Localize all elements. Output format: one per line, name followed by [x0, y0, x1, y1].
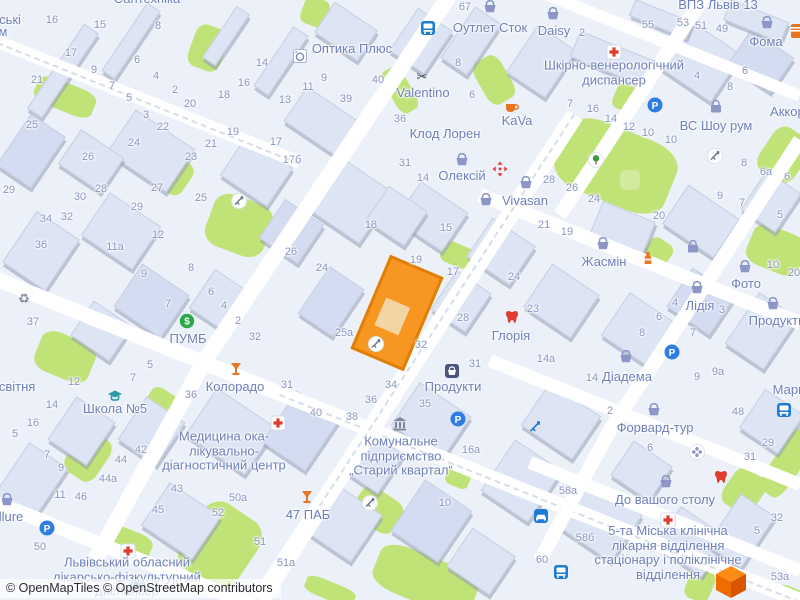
house-number: 2: [172, 84, 178, 96]
house-number: 11: [302, 81, 313, 93]
basket-icon[interactable]: [595, 236, 611, 252]
poi-label: Олексій: [438, 169, 485, 184]
house-number: 18: [218, 89, 230, 101]
house-number: 8: [741, 157, 747, 169]
house-number: 22: [157, 121, 169, 133]
house-number: 26: [566, 182, 578, 194]
house-number: 34: [385, 379, 397, 391]
poi-label: Глорія: [492, 329, 530, 344]
house-number: 6: [742, 65, 748, 77]
house-number: 5: [126, 92, 132, 104]
house-number: 60: [536, 554, 548, 566]
poi-label-line: діагностичний центр: [162, 458, 286, 473]
house-number: 2: [579, 27, 585, 39]
basket-icon[interactable]: [618, 349, 634, 365]
house-number: 31: [281, 379, 293, 391]
house-number: 24: [588, 193, 600, 205]
house-number: 18: [365, 219, 377, 231]
glass-icon[interactable]: [228, 361, 244, 377]
house-number: 9: [694, 371, 700, 383]
playground-icon[interactable]: [368, 336, 384, 352]
house-number: 36: [35, 239, 47, 251]
house-number: 16: [46, 14, 58, 26]
poi-label-line: Медицина ока-: [162, 429, 286, 444]
house-number: 3: [143, 109, 149, 121]
poi-label-line: Фото: [731, 277, 761, 292]
house-number: 34: [40, 213, 52, 225]
poi-label: Daisy: [538, 24, 571, 39]
poi-label-line: Комунальне: [349, 434, 453, 449]
parking-icon[interactable]: P: [664, 344, 680, 360]
house-number: 25a: [335, 327, 353, 339]
poi-label-line: Продукти: [425, 380, 482, 395]
house-number: 24: [128, 137, 140, 149]
house-number: 49: [716, 23, 728, 35]
house-number: 9: [91, 64, 97, 76]
house-number: 44a: [99, 473, 117, 485]
house-number: 28: [543, 174, 555, 186]
svg-text:P: P: [44, 524, 51, 535]
house-number: 29: [762, 437, 774, 449]
bus-icon[interactable]: [420, 20, 436, 36]
house-number: 8: [155, 20, 161, 32]
poi-label-line: Оптика Плюс: [312, 42, 392, 57]
map-label-layer: PPPP✂$♻161581769472152201816146786403991…: [0, 0, 800, 600]
house-number: 10: [642, 127, 654, 139]
poi-label-line: Діадема: [602, 370, 652, 385]
poi-label: Освітня: [0, 380, 35, 395]
house-number: 9: [321, 72, 327, 84]
poi-label: Сантехніка: [114, 0, 180, 6]
house-number: 14a: [537, 353, 555, 365]
house-number: 2: [607, 405, 613, 417]
bag-icon[interactable]: [685, 239, 701, 255]
house-number: 23: [527, 303, 539, 315]
poi-label-line: лікарня відділення: [594, 539, 741, 554]
poi-label-line: м: [0, 25, 7, 40]
poi-label-line: KaVa: [502, 114, 533, 129]
poi-label: м: [0, 25, 7, 40]
basket-icon[interactable]: [737, 259, 753, 275]
bus-icon[interactable]: [553, 564, 569, 580]
house-number: 26: [82, 151, 94, 163]
house-number: 31: [744, 451, 756, 463]
basket-icon[interactable]: [646, 402, 662, 418]
basket-icon[interactable]: [482, 0, 498, 15]
poi-label-line: ВПЗ Львів 13: [678, 0, 758, 12]
house-number: 7: [165, 298, 171, 310]
house-number: 40: [372, 74, 384, 86]
poi-label-line: Олексій: [438, 169, 485, 184]
house-number: 19: [227, 126, 239, 138]
house-number: 36: [394, 113, 406, 125]
house-number: 53: [677, 17, 689, 29]
house-number: 7: [109, 80, 115, 92]
house-number: 29: [131, 201, 143, 213]
house-number: 44: [115, 454, 127, 466]
house-number: 14: [256, 57, 268, 69]
poi-label: Діадема: [602, 370, 652, 385]
house-number: 5: [12, 428, 18, 440]
poi-label-line: llure: [0, 510, 23, 525]
house-number: 38: [346, 411, 358, 423]
house-number: 17: [65, 47, 77, 59]
playground-icon[interactable]: [707, 148, 723, 164]
house-number: 8: [639, 327, 645, 339]
poi-label-line: Освітня: [0, 380, 35, 395]
house-number: 24: [316, 262, 328, 274]
poi-label: ПУМБ: [170, 332, 207, 347]
house-number: 24: [508, 271, 520, 283]
house-number: 25: [26, 119, 38, 131]
house-number: 13: [279, 94, 291, 106]
poi-label: Школа №5: [83, 402, 147, 417]
house-number: 40: [310, 407, 322, 419]
house-number: 12: [152, 229, 164, 241]
poi-label: ВПЗ Львів 13: [678, 0, 758, 12]
house-number: 6: [134, 54, 140, 66]
poi-label-line: Форвард-тур: [617, 421, 694, 436]
flower-icon[interactable]: [689, 444, 705, 460]
laundry-icon[interactable]: [292, 48, 308, 64]
house-number: 11: [54, 489, 65, 501]
svg-text:P: P: [652, 101, 659, 112]
poi-label-line: Фома: [749, 35, 782, 50]
house-number: 30: [74, 191, 86, 203]
house-number: 21: [205, 138, 217, 150]
basket-icon[interactable]: [454, 152, 470, 168]
townhall-icon[interactable]: [392, 416, 408, 432]
basket-icon[interactable]: [759, 15, 775, 31]
house-number: 31: [469, 358, 481, 370]
poi-label-line: До вашого столу: [615, 493, 715, 508]
shop-dark-icon[interactable]: [444, 363, 460, 379]
house-number: 45: [152, 504, 164, 516]
house-number: 28: [457, 312, 469, 324]
house-number: 12: [623, 121, 635, 133]
poi-label: Форвард-тур: [617, 421, 694, 436]
bottle-icon[interactable]: [640, 250, 656, 266]
house-number: 16: [27, 417, 39, 429]
house-number: 21: [31, 74, 43, 86]
basket-icon[interactable]: [658, 474, 674, 490]
poi-label: Жасмін: [582, 255, 627, 270]
house-number: 10: [439, 497, 451, 509]
house-number: 67: [459, 1, 471, 13]
svg-text:P: P: [455, 415, 462, 426]
house-number: 7: [44, 449, 50, 461]
map-canvas[interactable]: PPPP✂$♻161581769472152201816146786403991…: [0, 0, 800, 600]
house-number: 5: [147, 359, 153, 371]
house-number: 16: [587, 103, 599, 115]
house-number: 16: [238, 77, 250, 89]
poi-label: 47 ПАБ: [286, 508, 331, 523]
house-number: 15: [440, 222, 452, 234]
parking-icon[interactable]: P: [450, 411, 466, 427]
house-number: 8: [188, 262, 194, 274]
poi-label-line: Vivasan: [502, 194, 548, 209]
poi-label-line: Жасмін: [582, 255, 627, 270]
house-number: 9a: [712, 366, 724, 378]
house-number: 11a: [106, 241, 124, 253]
house-number: 28: [95, 183, 107, 195]
poi-label-line: 47 ПАБ: [286, 508, 331, 523]
house-number: 31: [399, 157, 411, 169]
basket-icon[interactable]: [518, 175, 534, 191]
tree-icon[interactable]: [588, 152, 604, 168]
glass-icon[interactable]: [299, 489, 315, 505]
basket-icon[interactable]: [765, 296, 781, 312]
poi-label-line: Оутлет Сток: [453, 21, 527, 36]
house-number: 37: [27, 316, 39, 328]
poi-label-line: Продукти: [749, 314, 800, 329]
house-number: 16a: [462, 444, 480, 456]
house-number: 21: [538, 219, 550, 231]
house-number: 25: [195, 192, 207, 204]
house-number: 6a: [760, 166, 772, 178]
house-number: 51: [695, 20, 707, 32]
house-number: 17: [447, 266, 459, 278]
house-number: 6: [656, 311, 662, 323]
house-number: 10: [767, 259, 779, 271]
house-number: 4: [694, 70, 700, 82]
house-number: 53a: [771, 571, 789, 583]
poi-label: Комунальнепідприємство„Старий квартал“: [349, 434, 453, 478]
poi-label: Оптика Плюс: [312, 42, 392, 57]
house-number: 14: [586, 372, 598, 384]
playground-icon[interactable]: [362, 495, 378, 511]
poi-label: Мари: [773, 383, 800, 398]
bus-icon[interactable]: [776, 402, 792, 418]
house-number: 20: [788, 267, 800, 279]
house-number: 8: [455, 57, 461, 69]
poi-label: Лідія: [686, 299, 715, 314]
basket-icon[interactable]: [689, 280, 705, 296]
house-number: 19: [410, 254, 422, 266]
poi-label-line: підприємство: [349, 449, 453, 464]
poi-label: До вашого столу: [615, 493, 715, 508]
house-number: 27: [151, 182, 163, 194]
house-number: 32: [61, 211, 73, 223]
house-number: 46: [75, 491, 87, 503]
poi-label-line: Valentino: [396, 86, 449, 101]
house-number: 5: [777, 209, 783, 221]
poi-label-line: лікувально-: [162, 444, 286, 459]
house-number: 7: [567, 98, 573, 110]
poi-label-line: „Старий квартал“: [349, 463, 453, 478]
basket-icon[interactable]: [478, 192, 494, 208]
poi-label: Vivasan: [502, 194, 548, 209]
playground-small-icon[interactable]: [527, 419, 543, 435]
house-number: 2: [235, 315, 241, 327]
poi-label: Клод Лорен: [410, 127, 481, 142]
poi-label: KaVa: [502, 114, 533, 129]
house-number: 4: [221, 300, 227, 312]
house-number: 17: [270, 136, 282, 148]
house-number: 5: [754, 525, 760, 537]
house-number: 6: [208, 286, 214, 298]
poi-label-line: Лідія: [686, 299, 715, 314]
maptiler-cube-logo[interactable]: [716, 566, 746, 598]
bag-icon[interactable]: [708, 99, 724, 115]
basket-icon[interactable]: [545, 6, 561, 22]
poi-label: Оутлет Сток: [453, 21, 527, 36]
poi-label: Медицина ока-лікувально-діагностичний це…: [162, 429, 286, 473]
house-number: 9: [141, 268, 147, 280]
house-number: 51: [254, 536, 266, 548]
house-number: 9: [717, 190, 723, 202]
house-number: 3: [719, 304, 725, 316]
house-number: 7: [739, 197, 745, 209]
house-number: 43: [171, 483, 183, 495]
tooth-icon[interactable]: [504, 309, 520, 325]
house-number: 4: [153, 70, 159, 82]
house-number: 51a: [277, 557, 295, 569]
house-number: 55: [642, 19, 654, 31]
svg-text:P: P: [669, 348, 676, 359]
tooth-icon[interactable]: [713, 469, 729, 485]
house-number: 14: [605, 113, 617, 125]
poi-label: Продукти: [425, 380, 482, 395]
poi-label-line: Шкірно-венерологічний: [544, 59, 684, 74]
house-number: 35: [419, 398, 431, 410]
house-number: 8: [727, 81, 733, 93]
house-number: 9: [58, 462, 64, 474]
poi-label-line: Колорадо: [206, 380, 265, 395]
house-number: 32: [249, 331, 261, 343]
house-number: 36: [185, 389, 197, 401]
house-number: 42: [135, 444, 147, 456]
house-number: 23: [185, 151, 197, 163]
poi-label-line: Школа №5: [83, 402, 147, 417]
poi-label-line: ПУМБ: [170, 332, 207, 347]
poi-label-line: ВС Шоу рум: [680, 119, 753, 134]
house-number: 4: [672, 297, 678, 309]
house-number: 36: [365, 394, 377, 406]
poi-label-line: Аккорд: [770, 105, 800, 120]
house-number: 32: [771, 512, 783, 524]
poi-label: Шкірно-венерологічнийдиспансер: [544, 59, 684, 88]
house-number: 17б: [283, 154, 302, 166]
house-number: 29: [3, 184, 15, 196]
arrows-icon[interactable]: [492, 161, 508, 177]
poi-label-line: Львівський обласний: [53, 555, 201, 570]
house-number: 7: [690, 327, 696, 339]
house-number: 20: [184, 98, 196, 110]
poi-label-line: Daisy: [538, 24, 571, 39]
house-number: 6: [784, 171, 790, 183]
house-number: 20: [653, 210, 665, 222]
house-number: 6: [469, 89, 475, 101]
orange-partial-icon[interactable]: [789, 23, 800, 39]
poi-label: llure: [0, 510, 23, 525]
poi-label-line: Глорія: [492, 329, 530, 344]
house-number: 50: [34, 541, 46, 553]
parking-icon[interactable]: P: [647, 97, 663, 113]
house-number: 14: [46, 399, 58, 411]
house-number: 39: [340, 93, 352, 105]
poi-label: Продукти: [749, 314, 800, 329]
map-attribution[interactable]: © OpenMapTiles © OpenStreetMap contribut…: [0, 579, 281, 598]
house-number: 7: [130, 372, 136, 384]
house-number: 6: [647, 442, 653, 454]
svg-text:$: $: [184, 317, 190, 328]
poi-label: Колорадо: [206, 380, 265, 395]
poi-label: Аккорд: [770, 105, 800, 120]
dollar-icon[interactable]: $: [179, 313, 195, 329]
house-number: 52: [212, 507, 224, 519]
house-number: 58б: [576, 532, 595, 544]
parking-icon[interactable]: P: [39, 520, 55, 536]
house-number: 12: [68, 376, 80, 388]
house-number: 10: [665, 134, 677, 146]
poi-label: ВС Шоу рум: [680, 119, 753, 134]
poi-label-line: Клод Лорен: [410, 127, 481, 142]
poi-label: Фома: [749, 35, 782, 50]
scissors-icon[interactable]: ✂: [414, 69, 430, 85]
house-number: 32: [415, 339, 427, 351]
house-number: 26: [285, 246, 297, 258]
poi-label-line: диспансер: [544, 73, 684, 88]
house-number: 14: [417, 172, 429, 184]
house-number: 48: [732, 406, 744, 418]
house-number: 50a: [229, 492, 247, 504]
basket-icon[interactable]: [0, 492, 15, 508]
poi-label: Фото: [731, 277, 761, 292]
car-icon[interactable]: [533, 508, 549, 524]
poi-label: Valentino: [396, 86, 449, 101]
recycle-icon[interactable]: ♻: [16, 291, 32, 307]
house-number: 15: [94, 19, 106, 31]
poi-label-line: 5-та Міська клінічна: [594, 524, 741, 539]
playground-icon[interactable]: [231, 193, 247, 209]
poi-label-line: Сантехніка: [114, 0, 180, 6]
house-number: 58a: [559, 485, 577, 497]
poi-label-line: Мари: [773, 383, 800, 398]
house-number: 19: [561, 226, 573, 238]
